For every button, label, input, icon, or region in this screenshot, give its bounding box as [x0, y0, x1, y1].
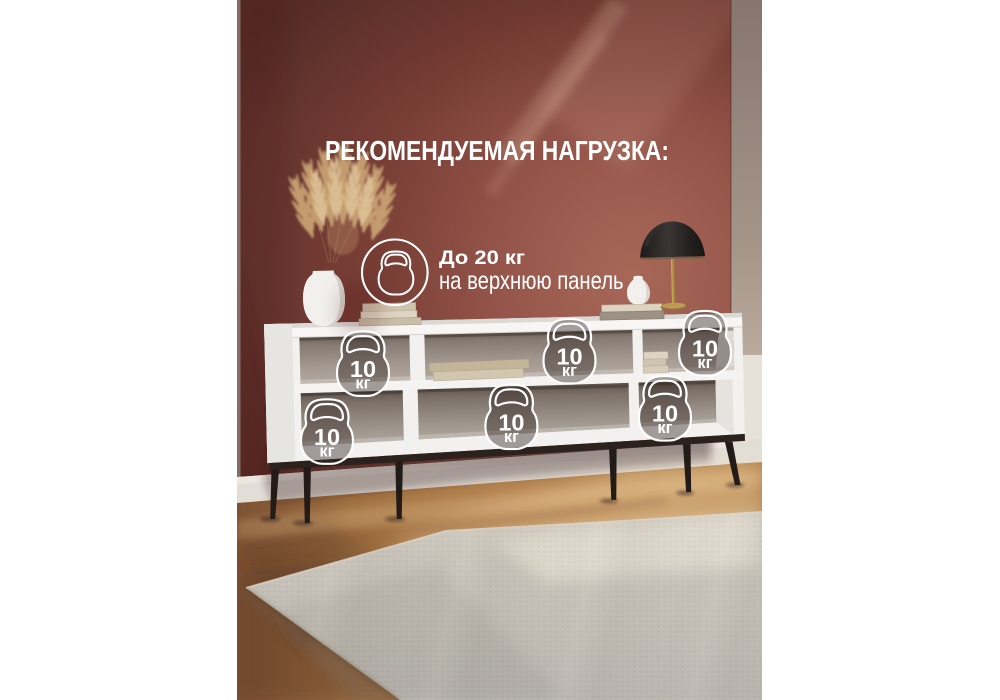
svg-text:кг: кг: [657, 419, 672, 437]
svg-text:кг: кг: [355, 375, 370, 393]
svg-text:кг: кг: [319, 443, 334, 461]
svg-text:кг: кг: [697, 354, 712, 372]
svg-text:кг: кг: [504, 428, 519, 446]
svg-text:кг: кг: [562, 362, 577, 380]
